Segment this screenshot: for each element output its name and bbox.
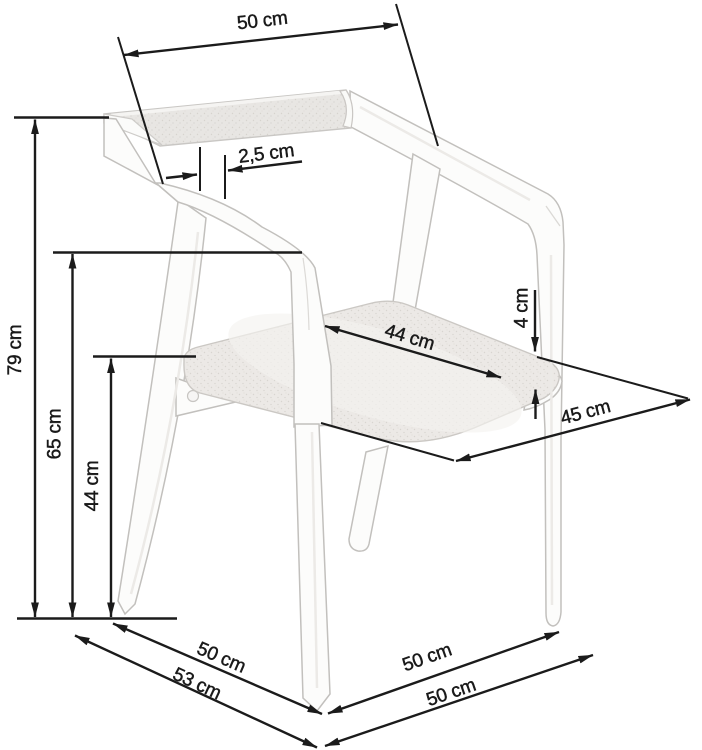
svg-text:4 cm: 4 cm (512, 288, 533, 328)
svg-text:53 cm: 53 cm (169, 664, 224, 704)
svg-text:44 cm: 44 cm (82, 461, 103, 512)
svg-text:65 cm: 65 cm (45, 409, 66, 460)
svg-text:50 cm: 50 cm (424, 675, 479, 711)
svg-text:50 cm: 50 cm (236, 8, 289, 35)
svg-text:45 cm: 45 cm (558, 396, 612, 429)
svg-text:79 cm: 79 cm (5, 325, 26, 376)
svg-text:50 cm: 50 cm (194, 638, 249, 677)
